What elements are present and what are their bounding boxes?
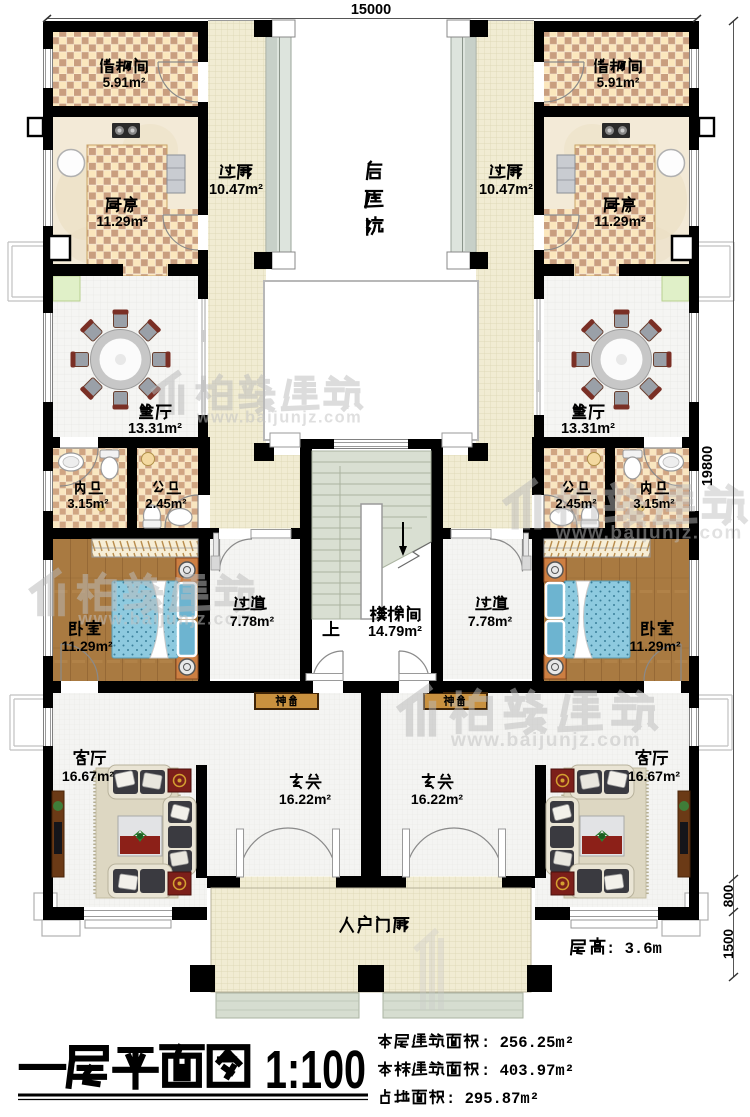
svg-text:16.22m²: 16.22m² xyxy=(411,791,463,807)
svg-text:11.29m²: 11.29m² xyxy=(594,213,646,229)
svg-text:: 403.97m²: : 403.97m² xyxy=(481,1062,574,1080)
svg-text:13.31m²: 13.31m² xyxy=(128,421,182,437)
svg-text:16.67m²: 16.67m² xyxy=(62,768,114,784)
svg-text:www.baijunjz.com: www.baijunjz.com xyxy=(555,523,743,544)
svg-text:10.47m²: 10.47m² xyxy=(479,182,533,198)
svg-text:14.79m²: 14.79m² xyxy=(368,624,422,640)
svg-text:www.baijunjz.com: www.baijunjz.com xyxy=(450,730,641,751)
svg-text:3.15m²: 3.15m² xyxy=(633,496,675,511)
svg-text:10.47m²: 10.47m² xyxy=(209,182,263,198)
svg-text:1:100: 1:100 xyxy=(265,1040,366,1100)
svg-text:800: 800 xyxy=(721,885,736,908)
svg-text:16.67m²: 16.67m² xyxy=(628,768,680,784)
svg-text:11.29m²: 11.29m² xyxy=(61,638,113,654)
svg-text:11.29m²: 11.29m² xyxy=(96,213,148,229)
svg-text:7.78m²: 7.78m² xyxy=(468,613,513,629)
svg-text:7.78m²: 7.78m² xyxy=(230,613,275,629)
svg-text:www.baijunjz.com: www.baijunjz.com xyxy=(196,409,362,427)
svg-text:: 3.6m: : 3.6m xyxy=(606,940,662,958)
svg-text:: 295.87m²: : 295.87m² xyxy=(446,1090,539,1108)
svg-text:11.29m²: 11.29m² xyxy=(629,638,681,654)
svg-text:2.45m²: 2.45m² xyxy=(555,496,597,511)
svg-text:5.91m²: 5.91m² xyxy=(597,75,640,90)
svg-text:2.45m²: 2.45m² xyxy=(145,496,187,511)
svg-text:1500: 1500 xyxy=(721,929,736,959)
svg-text:19800: 19800 xyxy=(700,446,716,486)
svg-text:: 256.25m²: : 256.25m² xyxy=(481,1034,574,1052)
svg-text:3.15m²: 3.15m² xyxy=(67,496,109,511)
svg-text:16.22m²: 16.22m² xyxy=(279,791,331,807)
svg-text:5.91m²: 5.91m² xyxy=(103,75,146,90)
svg-text:www.baijunjz.com: www.baijunjz.com xyxy=(77,609,254,629)
svg-text:15000: 15000 xyxy=(351,2,391,18)
svg-text:13.31m²: 13.31m² xyxy=(561,421,615,437)
